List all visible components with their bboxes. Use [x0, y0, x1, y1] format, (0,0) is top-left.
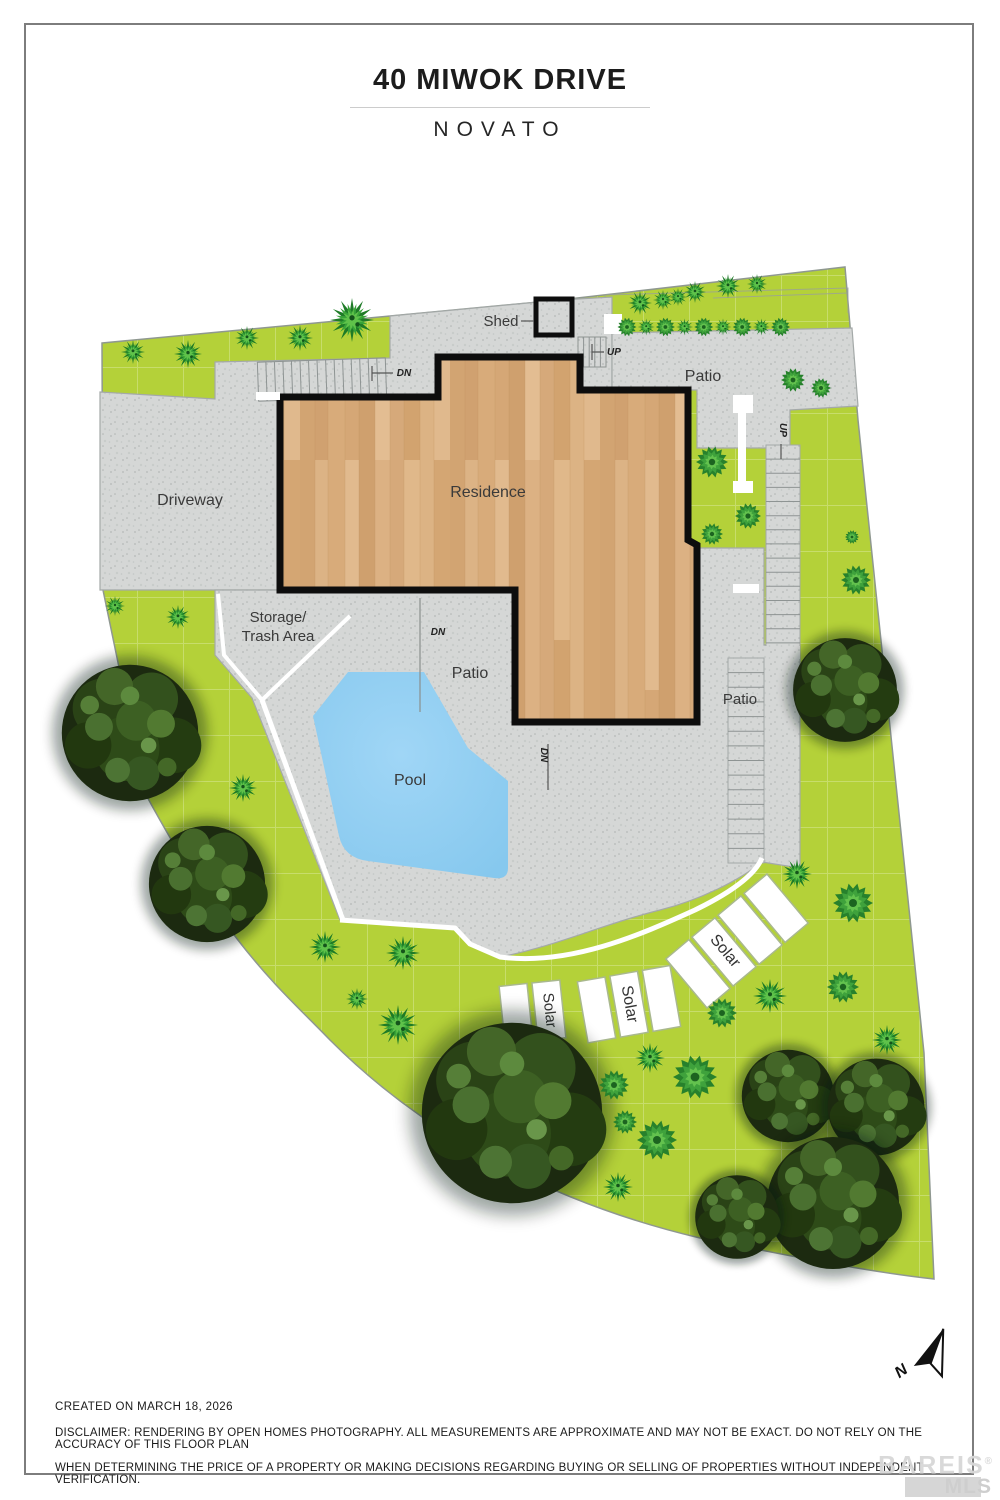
label-dn-pool: DN — [538, 748, 549, 763]
railing-post-top — [733, 395, 753, 413]
north-arrow: N — [889, 1317, 958, 1394]
label-patio-right: Patio — [723, 691, 757, 708]
label-shed: Shed — [483, 313, 518, 330]
railing-post-bottom — [733, 481, 753, 493]
page-subtitle: NOVATO — [0, 118, 1000, 142]
stair-landing — [728, 646, 800, 659]
disclaimer-line-1: DISCLAIMER: RENDERING BY OPEN HOMES PHOT… — [55, 1427, 955, 1451]
site-plan-page: 40 MIWOK DRIVE NOVATO — [0, 0, 1000, 1500]
stairs-right-lower — [728, 658, 764, 863]
label-patio-top: Patio — [685, 368, 722, 385]
label-residence: Residence — [450, 484, 526, 501]
tree — [53, 656, 208, 811]
title-divider — [350, 107, 650, 108]
tree — [690, 1170, 785, 1265]
page-title: 40 MIWOK DRIVE — [0, 64, 1000, 97]
disclaimer-line-2: WHEN DETERMINING THE PRICE OF A PROPERTY… — [55, 1462, 955, 1486]
gate-bar — [733, 584, 759, 593]
label-driveway: Driveway — [157, 492, 223, 509]
label-storage-2: Trash Area — [242, 628, 315, 645]
site-plan-drawing: Shed Patio Driveway Residence Storage/ T… — [24, 23, 976, 1477]
tree — [410, 1011, 615, 1216]
mls-watermark: BAREIS® MLS — [878, 1451, 992, 1498]
label-pool: Pool — [394, 772, 426, 789]
railing-bar — [738, 413, 746, 483]
watermark-registered-icon: ® — [985, 1456, 992, 1467]
label-dn-top: DN — [397, 368, 412, 379]
stairs-right-upper — [766, 445, 800, 657]
watermark-mls-text: MLS — [945, 1475, 992, 1499]
label-up-right: UP — [777, 423, 788, 437]
footer: CREATED ON MARCH 18, 2026 DISCLAIMER: RE… — [55, 1401, 955, 1497]
shed-footprint — [536, 299, 572, 335]
label-up-shed: UP — [607, 347, 621, 358]
label-storage-1: Storage/ — [250, 609, 308, 626]
label-patio-mid: Patio — [452, 665, 489, 682]
tree — [141, 818, 273, 950]
title-block: 40 MIWOK DRIVE NOVATO — [0, 64, 1000, 142]
tree — [786, 631, 904, 749]
compass-n-label: N — [892, 1361, 912, 1382]
created-date: CREATED ON MARCH 18, 2026 — [55, 1401, 955, 1413]
label-dn-mid: DN — [431, 627, 446, 638]
stair-landing-white — [256, 392, 280, 400]
watermark-bareis: BAREIS® — [878, 1451, 992, 1476]
